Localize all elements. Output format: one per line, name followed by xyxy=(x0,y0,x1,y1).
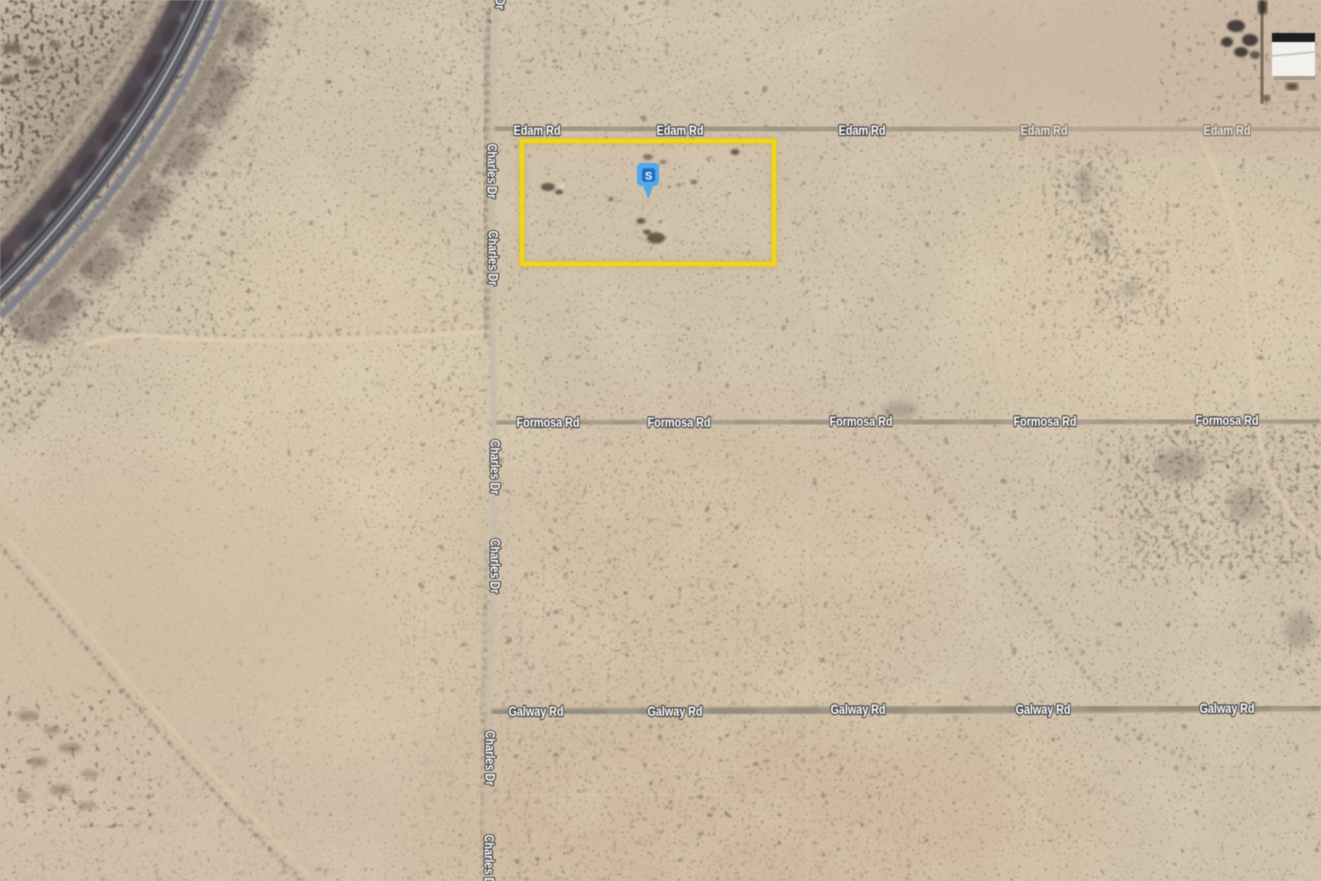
svg-text:Formosa Rd: Formosa Rd xyxy=(1196,413,1259,428)
svg-text:Charles Dr: Charles Dr xyxy=(492,0,507,10)
svg-text:Edam Rd: Edam Rd xyxy=(839,123,886,138)
svg-text:Formosa Rd: Formosa Rd xyxy=(1014,414,1077,429)
svg-text:Galway Rd: Galway Rd xyxy=(831,702,886,717)
svg-text:Charles Dr: Charles Dr xyxy=(481,835,496,881)
svg-text:Edam Rd: Edam Rd xyxy=(657,123,704,138)
svg-text:Galway Rd: Galway Rd xyxy=(1200,701,1255,716)
svg-text:Charles Dr: Charles Dr xyxy=(484,144,499,200)
svg-text:Formosa Rd: Formosa Rd xyxy=(830,414,893,429)
svg-text:Charles Dr: Charles Dr xyxy=(485,231,500,287)
svg-text:Formosa Rd: Formosa Rd xyxy=(648,415,711,430)
svg-text:Galway Rd: Galway Rd xyxy=(648,704,703,719)
svg-text:Charles Dr: Charles Dr xyxy=(482,731,497,787)
svg-text:Charles Dr: Charles Dr xyxy=(487,440,502,496)
svg-text:Galway Rd: Galway Rd xyxy=(509,704,564,719)
svg-text:Edam Rd: Edam Rd xyxy=(514,123,561,138)
svg-text:Formosa Rd: Formosa Rd xyxy=(517,415,580,430)
svg-text:S: S xyxy=(645,171,652,183)
svg-text:Charles Dr: Charles Dr xyxy=(487,539,502,595)
svg-text:Galway Rd: Galway Rd xyxy=(1016,702,1071,717)
